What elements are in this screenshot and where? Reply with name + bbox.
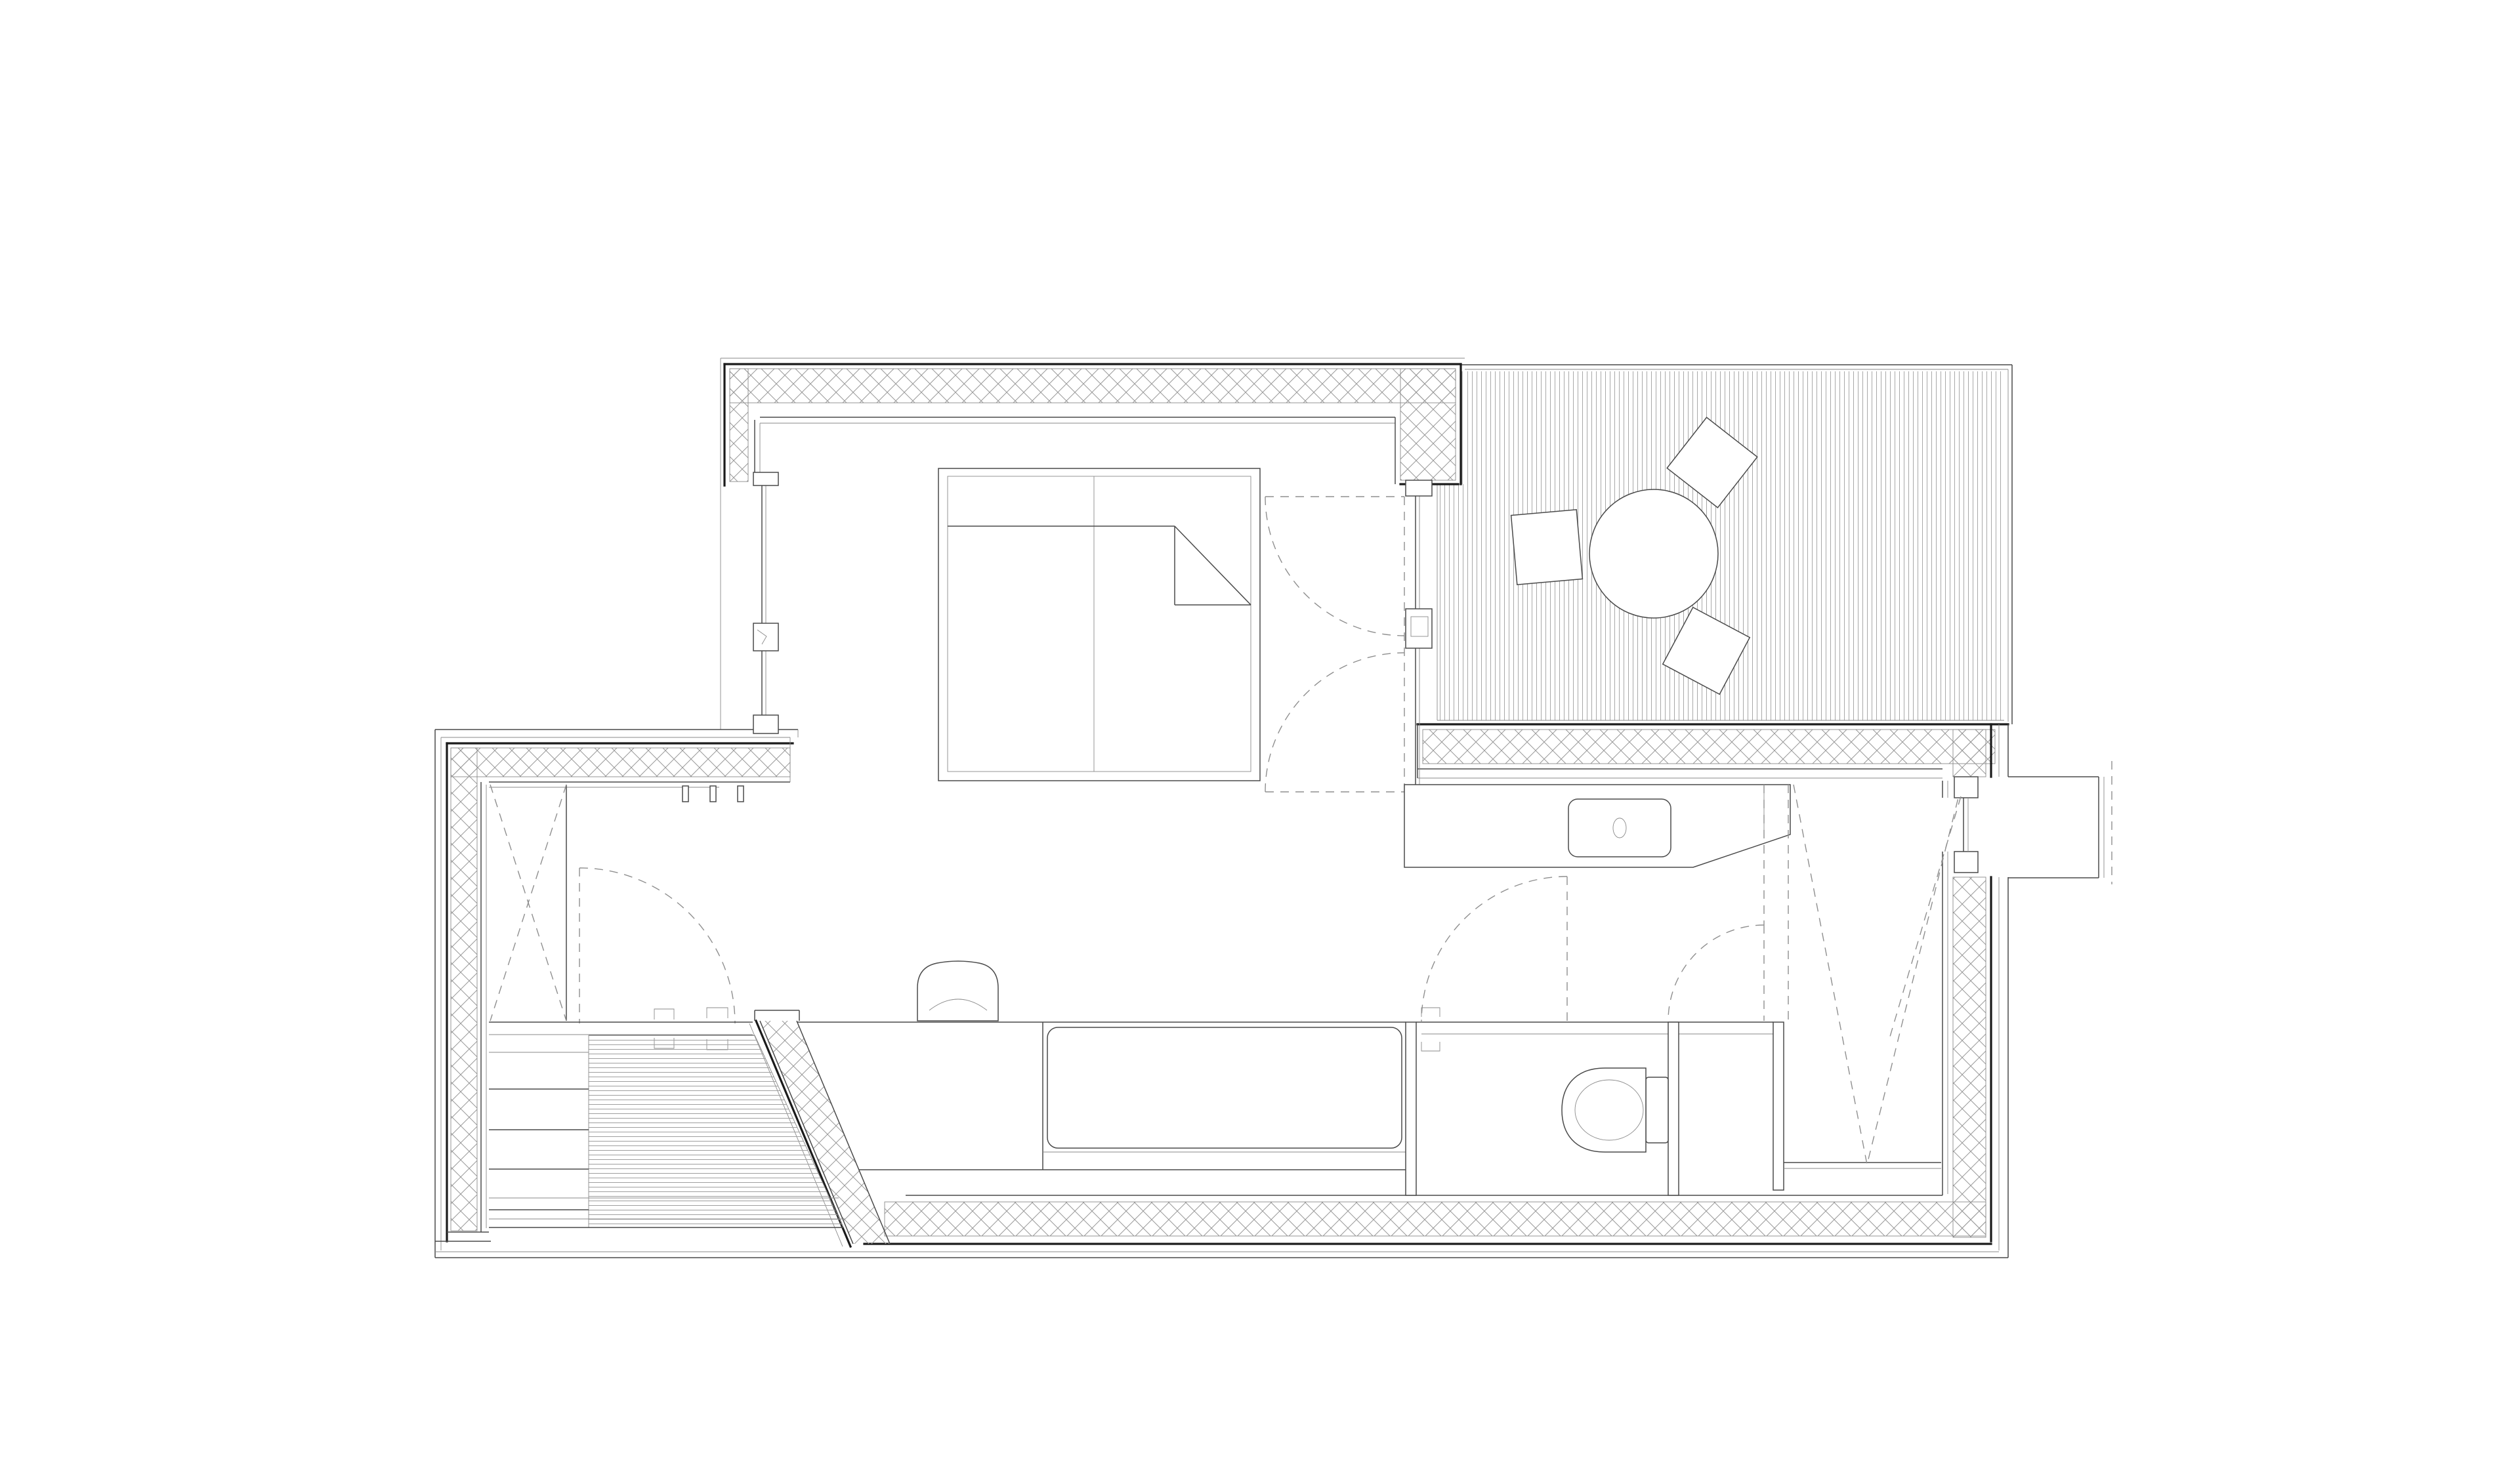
- desk-chair: [917, 961, 998, 1021]
- top-wall-insulation: [730, 369, 1456, 403]
- west-wall-insulation: [730, 369, 748, 482]
- coat-hook: [682, 786, 688, 802]
- stub-wall-insulation: [1400, 369, 1456, 480]
- terrace: [1437, 365, 2012, 724]
- sink: [1568, 799, 1671, 857]
- floor-plan-page: Architectural floor plan — studio apartm…: [0, 0, 2520, 1463]
- stair-treads: [489, 1089, 589, 1210]
- cushion: [1047, 1027, 1402, 1148]
- floor-plan-canvas: Architectural floor plan — studio apartm…: [0, 0, 2520, 1463]
- east-wall-insulation-upper: [1953, 730, 1986, 777]
- door-arc-upper: [1265, 497, 1404, 636]
- exterior-landing-sides: [2008, 777, 2099, 878]
- terrace-chair-west: [1511, 510, 1583, 585]
- west-window-frame-bottom: [753, 715, 778, 733]
- terrace-south-wall-insulation: [1423, 730, 1995, 764]
- west-window-frame-top: [753, 472, 778, 485]
- lower-west-wall-insulation: [451, 748, 477, 1231]
- wardrobe-x-symbol: [490, 785, 566, 1021]
- entry-hall: [1764, 761, 2112, 1164]
- shower-door-arc-dashed: [1668, 925, 1764, 1021]
- sloped-ceiling-dashes: [1794, 785, 1962, 1164]
- terrace-glass-frame-top: [1406, 480, 1432, 496]
- dressing-door-arc-dashed: [579, 868, 735, 1023]
- partition-wall-wc-right: [1668, 1022, 1679, 1195]
- partition-wall-shower: [1773, 1022, 1784, 1190]
- wc-door-arc-dashed: [1421, 876, 1567, 1022]
- bedroom: [753, 468, 1432, 832]
- east-wall-insulation-lower: [1953, 877, 1986, 1237]
- partition-wall-wc-left: [1406, 1022, 1416, 1195]
- bathroom-row: [1406, 876, 1941, 1195]
- dressing-area: [490, 785, 744, 1023]
- round-table: [1589, 489, 1718, 618]
- vanity-counter: [1404, 785, 1790, 867]
- diagonal-wall-cap: [755, 1010, 799, 1021]
- double-door-swing-dashed: [1265, 497, 1404, 792]
- step-wall-insulation: [451, 748, 790, 777]
- south-wall-insulation: [885, 1202, 1986, 1236]
- entry-door-frame-bottom: [1954, 852, 1978, 873]
- lower-west-wall-cap: [435, 1232, 491, 1241]
- toilet-bowl: [1562, 1068, 1646, 1152]
- bench-daybed: [797, 961, 1406, 1170]
- door-arc-lower: [1265, 653, 1404, 792]
- coat-hook: [738, 786, 744, 802]
- terrace-door-handle: [1411, 617, 1428, 636]
- double-bed: [938, 468, 1260, 781]
- coat-hook: [710, 786, 716, 802]
- toilet-cistern: [1646, 1077, 1668, 1143]
- entry-door-swing-dashed: [1890, 796, 1961, 1037]
- exterior-landing: [2008, 761, 2112, 884]
- wc-door-jamb-icon: [1421, 1008, 1440, 1051]
- bed-frame: [938, 468, 1260, 781]
- step-wall-end-join: [790, 730, 798, 782]
- entry-door-frame-top: [1954, 777, 1978, 798]
- wall-hung-toilet: [1562, 1068, 1668, 1152]
